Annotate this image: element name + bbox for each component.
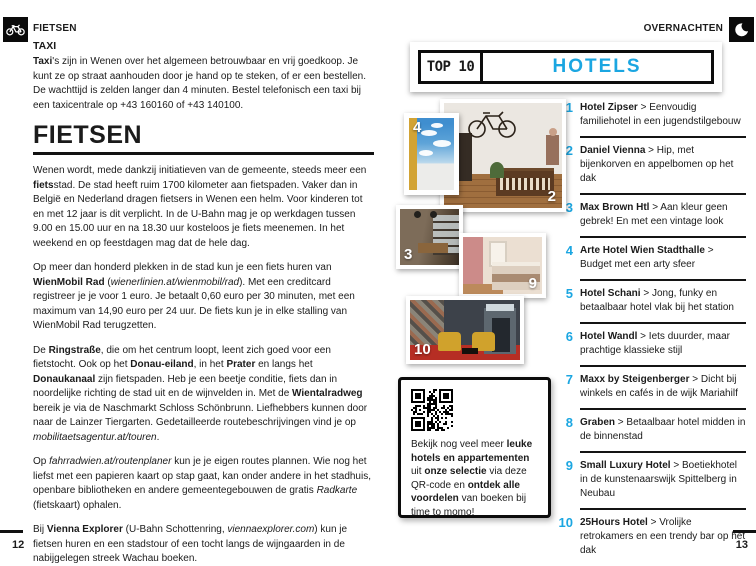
photo-art: 9 [463,237,542,294]
hotel-text: Hotel Schani > Jong, funky en betaalbaar… [580,279,746,315]
page-number-right: 13 [736,539,748,551]
hotel-text: Small Luxury Hotel > Boetiekhotel in de … [580,451,746,501]
qr-code [411,389,453,431]
moon-icon [729,17,754,42]
photo-art: 3 [400,209,459,265]
hotel-rank: 10 [558,508,580,558]
left-section-label: FIETSEN [33,23,77,34]
photo-badge-9: 9 [529,275,537,292]
hotel-rank: 5 [558,279,580,315]
hotel-rank: 9 [558,451,580,501]
fietsen-paragraph-4: Op fahrradwien.at/routenplaner kun je je… [33,455,374,513]
photo-badge-4: 4 [413,119,421,136]
photo-badge-3: 3 [404,246,412,263]
hotel-name: Maxx by Steigenberger [580,374,689,385]
page-number-rule-left [0,530,23,533]
hotel-name: 25Hours Hotel [580,517,648,528]
fietsen-paragraph-2: Op meer dan honderd plekken in de stad k… [33,261,374,334]
hotel-name: Max Brown Htl [580,202,649,213]
hotel-list-item: 4 Arte Hotel Wien Stadthalle > Budget me… [558,236,746,272]
hotel-name: Arte Hotel Wien Stadthalle [580,245,705,256]
bicycle-on-wall-icon [466,109,518,139]
hotel-list-item: 5 Hotel Schani > Jong, funky en betaalba… [558,279,746,315]
hotel-list-item: 9 Small Luxury Hotel > Boetiekhotel in d… [558,451,746,501]
hotel-text: Arte Hotel Wien Stadthalle > Budget met … [580,236,746,272]
hotel-list-item: 6 Hotel Wandl > Iets duurder, maar prach… [558,322,746,358]
hotel-text: Daniel Vienna > Hip, met bijenkorven en … [580,136,746,186]
hotel-rank: 7 [558,365,580,401]
hotel-list-item: 1 Hotel Zipser > Eenvoudig familiehotel … [558,101,746,129]
hotel-name: Daniel Vienna [580,145,645,156]
photo-badge-2: 2 [548,188,556,205]
hotel-name: Small Luxury Hotel [580,460,671,471]
hotel-text: Hotel Zipser > Eenvoudig familiehotel in… [580,101,746,129]
hotel-name: Hotel Wandl [580,331,637,342]
photo-art: 2 [444,103,562,208]
hotel-rank: 4 [558,236,580,272]
fietsen-paragraph-5: Bij Vienna Explorer (U-Bahn Schottenring… [33,523,374,566]
photo-sky-mural-room: 4 [404,113,459,195]
fietsen-paragraph-1: Wenen wordt, mede dankzij initiatieven v… [33,164,374,251]
hotel-list-item: 7 Maxx by Steigenberger > Dicht bij wink… [558,365,746,401]
photo-art: 10 [410,300,520,360]
page-number-rule-right [733,530,756,533]
hotel-text: 25Hours Hotel > Vrolijke retrokamers en … [580,508,746,558]
book-spread: FIETSEN TAXI Taxi's zijn in Wenen over h… [0,0,756,566]
photo-industrial-loft: 3 [396,205,463,269]
page-number-left: 12 [12,539,24,551]
hotel-list-item: 8 Graben > Betaalbaar hotel midden in de… [558,408,746,444]
top10-banner: TOP 10 HOTELS [410,42,722,92]
hotel-name: Hotel Schani [580,288,641,299]
bicycle-icon [3,17,28,42]
hotel-name: Graben [580,417,615,428]
hotel-list: 1 Hotel Zipser > Eenvoudig familiehotel … [558,101,746,558]
top10-label: TOP 10 [421,53,483,81]
hotel-text: Max Brown Htl > Aan kleur geen gebrek! E… [580,193,746,229]
hotel-text: Graben > Betaalbaar hotel midden in de b… [580,408,746,444]
fietsen-title: FIETSEN [33,123,374,155]
hotel-list-item: 2 Daniel Vienna > Hip, met bijenkorven e… [558,136,746,186]
hotel-rank: 6 [558,322,580,358]
hotel-list-item: 3 Max Brown Htl > Aan kleur geen gebrek!… [558,193,746,229]
qr-note-text: Bekijk nog veel meer leuke hotels en app… [411,438,538,520]
right-section-label: OVERNACHTEN [644,23,723,34]
photo-retro-lounge: 10 [406,296,524,364]
taxi-paragraph: Taxi's zijn in Wenen over het algemeen b… [33,55,374,113]
taxi-heading: TAXI [33,40,374,52]
photo-pink-bedroom: 9 [459,233,546,298]
top10-frame: TOP 10 HOTELS [418,50,714,84]
hotel-text: Maxx by Steigenberger > Dicht bij winkel… [580,365,746,401]
photo-art: 4 [409,118,454,190]
hotel-rank: 8 [558,408,580,444]
hotel-text: Hotel Wandl > Iets duurder, maar prachti… [580,322,746,358]
hotel-list-item: 10 25Hours Hotel > Vrolijke retrokamers … [558,508,746,558]
photo-badge-10: 10 [414,341,431,358]
left-page-content: TAXI Taxi's zijn in Wenen over het algem… [33,40,374,566]
top10-title: HOTELS [483,53,711,81]
hotel-name: Hotel Zipser [580,102,638,113]
fietsen-paragraph-3: De Ringstraße, die om het centrum loopt,… [33,344,374,446]
qr-promo-card: Bekijk nog veel meer leuke hotels en app… [398,377,551,518]
